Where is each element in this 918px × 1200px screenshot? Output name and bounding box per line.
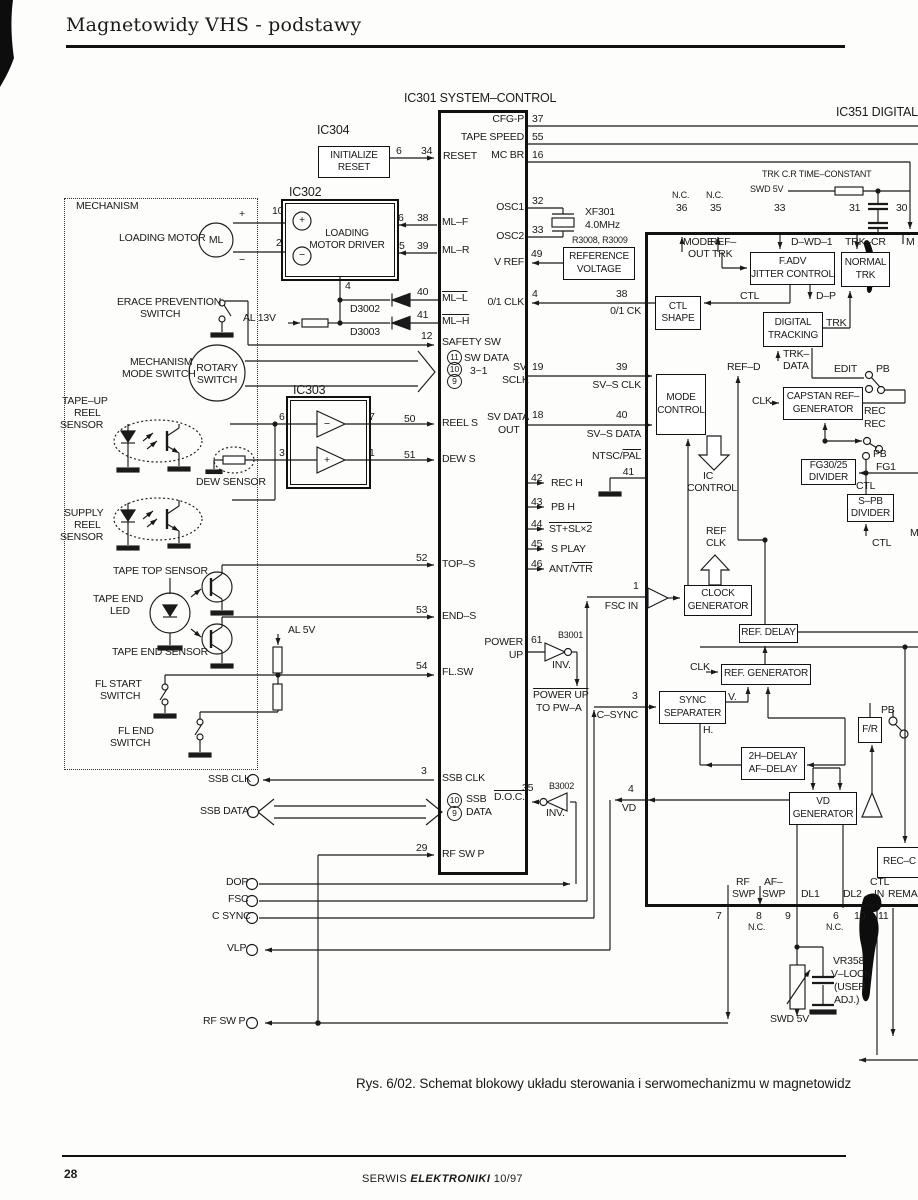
schematic-label: PB bbox=[873, 449, 887, 460]
schematic-label: CTL bbox=[870, 877, 889, 888]
schematic-label: FL.SW bbox=[442, 667, 473, 678]
schematic-label: RESET bbox=[443, 151, 477, 162]
schematic-label: TAPE SPEED bbox=[461, 132, 524, 143]
schematic-label: 30 bbox=[896, 203, 907, 214]
schematic-label: FL START bbox=[95, 679, 142, 690]
schematic-block: REF. DELAY bbox=[739, 624, 798, 643]
schematic-label: SENSOR bbox=[60, 532, 103, 543]
schematic-label: SWP bbox=[762, 889, 785, 900]
schematic-label: 35 bbox=[710, 203, 721, 214]
schematic-label: 51 bbox=[404, 450, 415, 461]
schematic-label: SWITCH bbox=[100, 691, 140, 702]
schematic-label: CTL bbox=[856, 481, 875, 492]
schematic-label: N.C. bbox=[748, 923, 765, 932]
schematic-label: 12 bbox=[421, 331, 432, 342]
schematic-label: MC BR bbox=[491, 150, 524, 161]
schematic-label: N.C. bbox=[672, 191, 689, 200]
schematic-label: 2 bbox=[276, 238, 282, 249]
schematic-label: 61 bbox=[531, 635, 542, 646]
schematic-label: 9 bbox=[447, 806, 462, 821]
schematic-label: 53 bbox=[416, 605, 427, 616]
schematic-label: 40 bbox=[616, 410, 627, 421]
schematic-label: N.C. bbox=[706, 191, 723, 200]
schematic-label: FSC bbox=[228, 894, 248, 905]
schematic-label: + bbox=[299, 215, 305, 226]
schematic-label: D3003 bbox=[350, 327, 380, 338]
schematic-label: C–SYNC bbox=[597, 710, 638, 721]
schematic-label: IC302 bbox=[289, 186, 321, 199]
schematic-label: ERACE PREVENTION bbox=[117, 297, 221, 308]
schematic-label: D3002 bbox=[350, 304, 380, 315]
schematic-label: 6 bbox=[279, 412, 285, 423]
schematic-block: CTLSHAPE bbox=[655, 296, 701, 330]
schematic-label: CFG-P bbox=[492, 114, 524, 125]
schematic-label: DL2 bbox=[843, 889, 862, 900]
schematic-label: SV–S CLK bbox=[592, 380, 641, 391]
schematic-label: 42 bbox=[531, 473, 542, 484]
schematic-label: TRK C.R TIME–CONSTANT bbox=[762, 170, 871, 179]
schematic-label: 54 bbox=[416, 661, 427, 672]
schematic-label: SV DATA bbox=[487, 412, 529, 423]
schematic-block: F/R bbox=[858, 717, 882, 743]
schematic-label: SUPPLY bbox=[64, 508, 103, 519]
schematic-label: V. bbox=[728, 692, 737, 703]
schematic-label: − bbox=[324, 419, 330, 430]
schematic-label: REMA bbox=[888, 889, 918, 900]
schematic-label: 32 bbox=[532, 196, 543, 207]
schematic-label: 3 bbox=[421, 766, 427, 777]
schematic-label: ML–R bbox=[442, 245, 469, 256]
schematic-block: REF. GENERATOR bbox=[721, 664, 811, 685]
schematic-label: 43 bbox=[531, 497, 542, 508]
schematic-label: D–P bbox=[816, 291, 836, 302]
schematic-label: SCLK bbox=[502, 375, 529, 386]
schematic-label: N.C. bbox=[826, 923, 843, 932]
schematic-label: 4 bbox=[532, 289, 538, 300]
schematic-label: AL 5V bbox=[288, 625, 315, 636]
schematic-label: 40 bbox=[417, 287, 428, 298]
schematic-label: TRK bbox=[712, 249, 732, 260]
schematic-label: SV–S DATA bbox=[587, 429, 641, 440]
schematic-label: 5 bbox=[399, 241, 405, 252]
schematic-label: IC351 DIGITAL bbox=[836, 106, 918, 119]
schematic-label: CTL bbox=[872, 538, 891, 549]
schematic-label: PB bbox=[876, 364, 890, 375]
schematic-label: 3~1 bbox=[470, 366, 487, 377]
schematic-label: 6 bbox=[833, 911, 839, 922]
schematic-label: 0/1 CK bbox=[610, 306, 641, 317]
schematic-label: 41 bbox=[417, 310, 428, 321]
schematic-label: SSB CLK bbox=[442, 773, 485, 784]
schematic-label: RF SW P bbox=[203, 1016, 245, 1027]
schematic-label: 8 bbox=[756, 911, 762, 922]
schematic-label: B3001 bbox=[558, 631, 583, 640]
schematic-label: 36 bbox=[676, 203, 687, 214]
schematic-label: 41 bbox=[623, 467, 634, 478]
schematic-label: LED bbox=[110, 606, 130, 617]
schematic-label: 7 bbox=[369, 412, 375, 423]
schematic-label: 4.0MHz bbox=[585, 220, 620, 231]
schematic-label: INV. bbox=[546, 808, 565, 819]
schematic-label: DL1 bbox=[801, 889, 820, 900]
schematic-label: 29 bbox=[416, 843, 427, 854]
schematic-label: CLK bbox=[706, 538, 726, 549]
schematic-label: 0/1 CLK bbox=[487, 297, 524, 308]
schematic-label: VD bbox=[622, 803, 636, 814]
schematic-label: REC bbox=[864, 406, 886, 417]
schematic-block: S–PBDIVIDER bbox=[847, 494, 894, 522]
schematic-label: SV bbox=[513, 362, 527, 373]
schematic-label: SWITCH bbox=[110, 738, 150, 749]
schematic-label: SWD 5V bbox=[770, 1014, 809, 1025]
schematic-label: VR358 bbox=[833, 956, 864, 967]
schematic-label: S PLAY bbox=[551, 544, 586, 555]
schematic-label: TAPE END SENSOR bbox=[112, 647, 208, 658]
schematic-label: 50 bbox=[404, 414, 415, 425]
schematic-block: INITIALIZERESET bbox=[318, 146, 390, 178]
schematic-block: 2H–DELAYAF–DELAY bbox=[741, 747, 805, 780]
schematic-label: + bbox=[324, 455, 330, 466]
schematic-label: EDIT bbox=[834, 364, 857, 375]
schematic-label: ADJ.) bbox=[834, 995, 859, 1006]
schematic-label: IC301 SYSTEM–CONTROL bbox=[404, 92, 556, 105]
schematic-label: IC304 bbox=[317, 124, 349, 137]
schematic-label: SSB DATA bbox=[200, 806, 249, 817]
schematic-label: TAPE–UP bbox=[62, 396, 108, 407]
schematic-label: SAFETY SW bbox=[442, 337, 501, 348]
schematic-label: H. bbox=[703, 725, 713, 736]
schematic-label: − bbox=[239, 255, 245, 266]
schematic-label: 49 bbox=[531, 249, 542, 260]
schematic-label: 38 bbox=[616, 289, 627, 300]
schematic-label: OUT bbox=[688, 249, 710, 260]
schematic-label: IC303 bbox=[293, 384, 325, 397]
schematic-label: TRK– bbox=[783, 349, 809, 360]
schematic-label: INV. bbox=[552, 660, 571, 671]
schematic-block: CLOCKGENERATOR bbox=[684, 585, 752, 616]
schematic-label: POWER UP bbox=[533, 690, 589, 701]
schematic-label: PB H bbox=[551, 502, 575, 513]
schematic-label: POWER bbox=[484, 637, 523, 648]
schematic-label: AF– bbox=[764, 877, 783, 888]
schematic-label: DEW SENSOR bbox=[196, 477, 266, 488]
schematic-label: CTL bbox=[740, 291, 759, 302]
schematic-label: 44 bbox=[531, 519, 542, 530]
schematic-label: ST+SL×2 bbox=[549, 524, 592, 535]
schematic-label: OSC2 bbox=[496, 231, 524, 242]
schematic-label: REF– bbox=[710, 237, 736, 248]
schematic-label: FSC IN bbox=[605, 601, 638, 612]
schematic-label: REEL S bbox=[442, 418, 478, 429]
schematic-label: SWP bbox=[732, 889, 755, 900]
schematic-label: 9 bbox=[785, 911, 791, 922]
schematic-label: 18 bbox=[532, 410, 543, 421]
schematic-label: DOP bbox=[226, 877, 248, 888]
schematic-block: MODECONTROL bbox=[656, 374, 706, 435]
schematic-label: 4 bbox=[345, 281, 351, 292]
schematic-label: 6 bbox=[396, 146, 402, 157]
schematic-label: 46 bbox=[531, 559, 542, 570]
schematic-block: F.ADVJITTER CONTROL bbox=[750, 252, 835, 285]
schematic-label: V REF bbox=[494, 257, 524, 268]
schematic-label: MECHANISM bbox=[130, 357, 192, 368]
schematic-label: 39 bbox=[417, 241, 428, 252]
schematic-label: TO PW–A bbox=[536, 703, 582, 714]
schematic-block: REFERENCEVOLTAGE bbox=[563, 247, 635, 280]
schematic-label: V–LOCK bbox=[831, 969, 871, 980]
schematic-block: NORMALTRK bbox=[841, 252, 890, 287]
schematic-label: − bbox=[299, 250, 305, 261]
schematic-label: D–WD–1 bbox=[791, 237, 832, 248]
schematic-label: CONTROL bbox=[687, 483, 737, 494]
schematic-label: 10 bbox=[272, 206, 283, 217]
schematic-label: ML–F bbox=[442, 217, 468, 228]
schematic-label: 3 bbox=[279, 448, 285, 459]
schematic-label: 35 bbox=[522, 783, 533, 794]
schematic-label: IN bbox=[874, 889, 884, 900]
schematic-label: PB bbox=[881, 705, 895, 716]
schematic-label: REEL bbox=[74, 408, 101, 419]
schematic-label: TRK–CR bbox=[845, 237, 886, 248]
schematic-label: 4 bbox=[628, 784, 634, 795]
schematic-label: TAPE END bbox=[93, 594, 143, 605]
schematic-label: VLP bbox=[227, 943, 246, 954]
schematic-label: IC bbox=[703, 471, 713, 482]
schematic-label: 33 bbox=[532, 225, 543, 236]
schematic-label: (USER bbox=[834, 982, 866, 993]
schematic-label: 1 bbox=[369, 448, 375, 459]
schematic-label: ANT/VTR bbox=[549, 564, 593, 575]
schematic-label: DATA bbox=[466, 807, 492, 818]
schematic-label: RF bbox=[736, 877, 750, 888]
schematic-label: ML bbox=[209, 235, 223, 246]
schematic-label: TAPE TOP SENSOR bbox=[113, 566, 208, 577]
schematic-label: 31 bbox=[849, 203, 860, 214]
schematic-block: REC–C bbox=[877, 847, 918, 878]
schematic-label: REF–D bbox=[727, 362, 760, 373]
schematic-label: RF SW P bbox=[442, 849, 484, 860]
schematic-label: 11 bbox=[878, 911, 889, 922]
schematic-label: MODE SWITCH bbox=[122, 369, 196, 380]
schematic-label: TOP–S bbox=[442, 559, 475, 570]
schematic-label: REF bbox=[706, 526, 726, 537]
schematic-label: TRK bbox=[826, 318, 846, 329]
schematic-label: 1 bbox=[633, 581, 639, 592]
schematic-label: 6 bbox=[398, 213, 404, 224]
schematic-label: NTSC/PAL bbox=[592, 451, 641, 462]
schematic-label: LOADING MOTOR bbox=[119, 233, 205, 244]
schematic-label: SENSOR bbox=[60, 420, 103, 431]
schematic-label: UP bbox=[509, 650, 523, 661]
schematic-block: FG30/25DIVIDER bbox=[801, 459, 856, 485]
schematic-label: FL END bbox=[118, 726, 154, 737]
schematic-label: 38 bbox=[417, 213, 428, 224]
schematic-label: ML–H bbox=[442, 316, 469, 327]
schematic-label: REC H bbox=[551, 478, 583, 489]
schematic-label: ROTARY bbox=[196, 363, 238, 374]
schematic-block bbox=[290, 400, 367, 485]
schematic-label: C SYNC bbox=[212, 911, 250, 922]
schematic-label: SSB bbox=[466, 794, 486, 805]
schematic-block: VDGENERATOR bbox=[789, 792, 857, 825]
schematic-label: 7 bbox=[716, 911, 722, 922]
schematic-label: SWITCH bbox=[140, 309, 180, 320]
schematic-block: DIGITALTRACKING bbox=[763, 312, 823, 347]
schematic-label: 33 bbox=[774, 203, 785, 214]
schematic-block: SYNCSEPARATER bbox=[659, 691, 726, 724]
schematic-label: 37 bbox=[532, 114, 543, 125]
schematic-label: 45 bbox=[531, 539, 542, 550]
schematic-block: CAPSTAN REF–GENERATOR bbox=[783, 387, 863, 420]
schematic-label: MECHANISM bbox=[76, 201, 138, 212]
schematic-label: CLK bbox=[690, 662, 710, 673]
schematic-label: OSC1 bbox=[496, 202, 524, 213]
schematic-label: R3008, R3009 bbox=[572, 236, 628, 245]
schematic-label: SW DATA bbox=[464, 353, 509, 364]
schematic-label: M bbox=[910, 528, 918, 539]
schematic-label: XF301 bbox=[585, 207, 615, 218]
schematic-label: CLK bbox=[752, 396, 772, 407]
schematic-label: REEL bbox=[74, 520, 101, 531]
schematic-label: 10 bbox=[854, 911, 865, 922]
schematic-label: 52 bbox=[416, 553, 427, 564]
schematic-label: 3 bbox=[632, 691, 638, 702]
schematic-label: 55 bbox=[532, 132, 543, 143]
schematic-label: FG1 bbox=[876, 462, 896, 473]
schematic-label: END–S bbox=[442, 611, 476, 622]
schematic-label: OUT bbox=[498, 425, 520, 436]
schematic-label: SWITCH bbox=[197, 375, 237, 386]
schematic-label: 34 bbox=[421, 146, 432, 157]
schematic-label: REC bbox=[864, 419, 886, 430]
schematic-label: 19 bbox=[532, 362, 543, 373]
magazine-page: Magnetowidy VHS - podstawy bbox=[0, 0, 918, 1200]
schematic-label: + bbox=[239, 209, 245, 220]
schematic-label: M bbox=[906, 237, 915, 248]
schematic-label: SWD 5V bbox=[750, 185, 783, 194]
schematic-label: 39 bbox=[616, 362, 627, 373]
schematic-label: B3002 bbox=[549, 782, 574, 791]
schematic-label: 16 bbox=[532, 150, 543, 161]
schematic-label: SSB CLK bbox=[208, 774, 251, 785]
schematic-label: AL 13V bbox=[243, 313, 276, 324]
schematic-label: 9 bbox=[447, 374, 462, 389]
schematic-label: ML–L bbox=[442, 293, 467, 304]
schematic-label: D.O.C. bbox=[494, 792, 525, 803]
schematic-label: DATA bbox=[783, 361, 809, 372]
schematic-label: DEW S bbox=[442, 454, 475, 465]
